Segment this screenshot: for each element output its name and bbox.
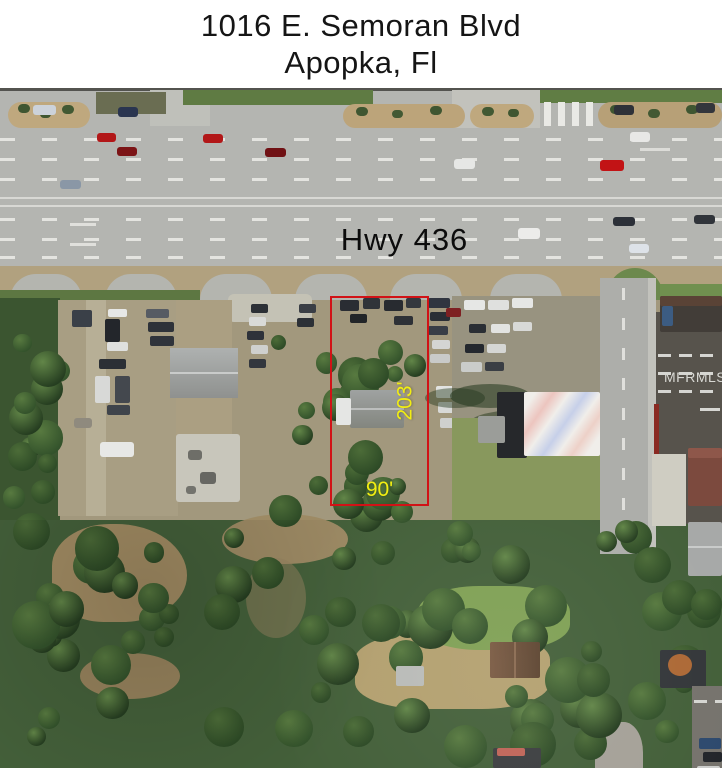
- vehicle: [108, 309, 127, 317]
- vehicle: [100, 442, 134, 457]
- vehicle: [465, 344, 484, 353]
- vehicle: [97, 133, 116, 142]
- photo-detail: [654, 404, 659, 460]
- photo-detail: [640, 148, 670, 151]
- photo-detail: [183, 90, 373, 105]
- photo-detail: [74, 418, 92, 428]
- photo-detail: [170, 372, 238, 374]
- photo-detail: [62, 105, 74, 114]
- parcel-depth-label: 203': [393, 381, 417, 420]
- vehicle: [487, 344, 506, 353]
- vehicle: [428, 298, 450, 308]
- vehicle: [105, 319, 120, 342]
- vehicle: [107, 405, 130, 415]
- photo-detail: [0, 197, 722, 199]
- vehicle: [432, 340, 450, 349]
- photo-detail: [425, 388, 485, 408]
- photo-detail: [482, 107, 494, 116]
- vehicle: [60, 180, 81, 189]
- photo-detail: [186, 486, 196, 494]
- photo-detail: [652, 454, 686, 526]
- photo-detail: [188, 450, 202, 460]
- photo-detail: [688, 448, 722, 458]
- photo-detail: [392, 110, 403, 118]
- vehicle: [117, 147, 137, 156]
- vehicle: [613, 217, 635, 226]
- vehicle: [446, 308, 461, 317]
- vehicle: [614, 105, 634, 115]
- photo-title-band: 1016 E. Semoran Blvd Apopka, Fl: [0, 0, 722, 88]
- vehicle: [249, 359, 266, 368]
- parcel-boundary-outline: 203' 90': [330, 296, 429, 506]
- photo-detail: [0, 205, 722, 207]
- vehicle: [454, 159, 475, 169]
- photo-detail: [18, 104, 30, 113]
- vehicle: [203, 134, 223, 143]
- photo-detail: [356, 107, 368, 116]
- vehicle: [118, 107, 138, 117]
- tree-canopy: [298, 402, 315, 419]
- photo-detail: [70, 223, 96, 226]
- photo-detail: [508, 109, 519, 117]
- vehicle: [469, 324, 486, 333]
- city-state-line: Apopka, Fl: [284, 44, 437, 81]
- vehicle: [491, 324, 510, 333]
- vehicle: [115, 376, 130, 403]
- photo-detail: [658, 390, 720, 393]
- photo-detail: [648, 109, 660, 118]
- vehicle: [428, 326, 448, 335]
- tree-canopy: [14, 392, 35, 413]
- vehicle: [150, 336, 174, 346]
- photo-detail: [544, 102, 600, 126]
- photo-detail: [478, 416, 505, 443]
- photo-detail: [0, 520, 722, 768]
- photo-detail: [660, 296, 722, 306]
- vehicle: [461, 362, 482, 372]
- vehicle: [33, 105, 56, 115]
- vehicle: [512, 298, 533, 308]
- vehicle: [265, 148, 286, 157]
- photo-detail: [200, 472, 216, 484]
- photo-detail: [86, 300, 106, 516]
- highway-label: Hwy 436: [292, 222, 517, 258]
- tree-canopy: [292, 425, 312, 445]
- vehicle: [630, 132, 650, 142]
- vehicle: [249, 317, 266, 326]
- photo-detail: [0, 178, 722, 181]
- vehicle: [95, 376, 110, 403]
- mls-watermark: MFRMLS: [664, 369, 722, 385]
- vehicle: [251, 304, 268, 313]
- tree-canopy: [3, 486, 25, 508]
- vehicle: [488, 300, 509, 310]
- photo-detail: [700, 408, 720, 411]
- vehicle: [464, 300, 485, 310]
- vehicle: [72, 310, 92, 327]
- photo-detail: [470, 104, 534, 128]
- vehicle: [629, 244, 649, 253]
- vehicle: [107, 342, 128, 351]
- vehicle: [513, 322, 532, 331]
- vehicle: [696, 103, 715, 113]
- vehicle: [146, 309, 169, 318]
- photo-detail: [658, 354, 720, 357]
- vehicle: [662, 306, 673, 326]
- vehicle: [299, 304, 316, 313]
- vehicle: [694, 215, 715, 224]
- tree-canopy: [13, 334, 31, 352]
- photo-detail: [524, 392, 600, 456]
- vehicle: [251, 345, 268, 354]
- vehicle: [485, 362, 504, 371]
- vehicle: [247, 331, 264, 340]
- address-line: 1016 E. Semoran Blvd: [201, 7, 521, 44]
- parcel-width-label: 90': [366, 478, 393, 502]
- photo-detail: [622, 288, 625, 538]
- tree-canopy: [38, 454, 57, 473]
- vehicle: [99, 359, 126, 369]
- vehicle: [148, 322, 174, 332]
- vehicle: [297, 318, 314, 327]
- photo-detail: [70, 243, 96, 246]
- photo-detail: [430, 106, 442, 115]
- vehicle: [600, 160, 624, 171]
- vehicle: [518, 228, 540, 239]
- listing-photo-page: 1016 E. Semoran Blvd Apopka, Fl Hwy 436 …: [0, 0, 722, 768]
- vehicle: [430, 354, 450, 363]
- aerial-photo: Hwy 436 203' 90' MFRMLS: [0, 88, 722, 768]
